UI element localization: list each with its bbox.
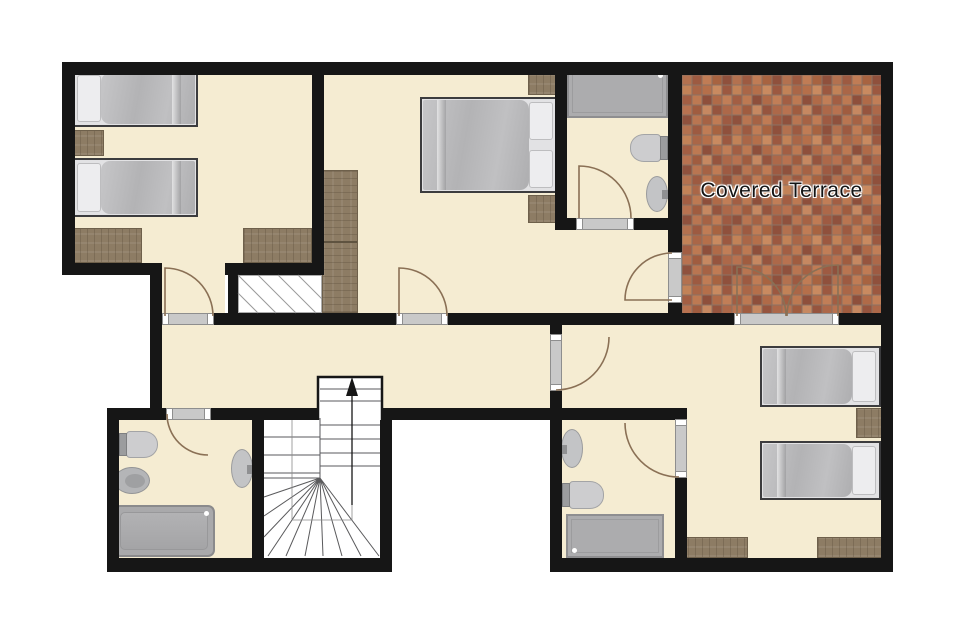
wall bbox=[213, 313, 228, 325]
stair-column-floor bbox=[319, 377, 381, 420]
wall bbox=[562, 408, 687, 420]
terrace-label: Covered Terrace bbox=[682, 75, 881, 307]
twin-bed bbox=[760, 346, 881, 407]
door-threshold-bedroom-top-left bbox=[163, 313, 213, 325]
twin-bed bbox=[72, 158, 198, 217]
shower-drain bbox=[572, 548, 577, 553]
wall bbox=[555, 62, 567, 230]
door-threshold-terrace-side bbox=[668, 253, 682, 302]
toilet bbox=[562, 481, 604, 509]
door-threshold-bathroom-left bbox=[167, 408, 210, 420]
duvet bbox=[423, 100, 529, 190]
wardrobe bbox=[72, 228, 142, 263]
door-threshold-bathroom-right bbox=[675, 420, 687, 477]
toilet bbox=[630, 134, 668, 162]
wall bbox=[252, 420, 264, 560]
duvet bbox=[101, 161, 195, 214]
pillow bbox=[77, 75, 101, 122]
wall bbox=[210, 408, 318, 420]
door-threshold-bedroom-middle bbox=[397, 313, 447, 325]
bathtub bbox=[113, 505, 215, 557]
wall bbox=[312, 62, 324, 275]
pillow bbox=[852, 446, 876, 495]
bidet-basin bbox=[125, 474, 145, 488]
bathtub-drain bbox=[204, 511, 209, 516]
wall bbox=[107, 558, 392, 572]
toilet bbox=[119, 431, 158, 458]
door-threshold-bathroom-top bbox=[577, 218, 633, 230]
wall bbox=[62, 263, 155, 275]
floor-plan: Covered Terrace bbox=[0, 0, 960, 640]
toilet-tank bbox=[660, 136, 668, 160]
wall bbox=[225, 263, 324, 275]
wall bbox=[228, 275, 238, 313]
toilet-bowl bbox=[569, 481, 604, 509]
shower-inner bbox=[571, 519, 659, 553]
middle-passage-floor bbox=[555, 230, 668, 313]
toilet-tank bbox=[562, 483, 570, 507]
wall bbox=[838, 313, 881, 325]
wall bbox=[150, 263, 162, 420]
pillow bbox=[529, 150, 553, 188]
wall bbox=[447, 313, 735, 325]
wall bbox=[62, 62, 893, 75]
pillow bbox=[852, 351, 876, 402]
pillow bbox=[77, 163, 101, 212]
wall bbox=[380, 420, 392, 572]
twin-bed bbox=[72, 70, 198, 127]
sink bbox=[646, 176, 668, 212]
door-threshold-terrace-double bbox=[735, 313, 838, 325]
wall bbox=[668, 62, 682, 253]
wall bbox=[382, 408, 562, 420]
sink bbox=[561, 429, 583, 468]
double-bed bbox=[420, 97, 558, 193]
wardrobe bbox=[680, 537, 748, 558]
twin-bed bbox=[760, 441, 881, 500]
bidet bbox=[114, 467, 150, 494]
wall bbox=[550, 558, 893, 572]
wall bbox=[555, 218, 577, 230]
toilet-bowl bbox=[126, 431, 158, 458]
duvet bbox=[763, 349, 852, 404]
duvet bbox=[101, 73, 195, 124]
wall bbox=[62, 62, 75, 275]
hatched-void-area bbox=[238, 275, 322, 313]
pillow bbox=[529, 102, 553, 140]
wardrobe bbox=[243, 228, 312, 263]
wardrobe bbox=[817, 537, 886, 558]
duvet bbox=[763, 444, 852, 497]
shower-tray bbox=[566, 514, 664, 558]
door-recess-floor bbox=[162, 263, 225, 318]
door-threshold-hallway-right bbox=[550, 335, 562, 390]
nightstand bbox=[72, 130, 104, 156]
shower-tray bbox=[567, 68, 668, 118]
tall-wardrobe bbox=[322, 170, 358, 313]
wall bbox=[881, 62, 893, 572]
wall bbox=[107, 408, 119, 570]
shower-inner bbox=[572, 73, 663, 113]
toilet-tank bbox=[119, 433, 127, 456]
nightstand bbox=[528, 195, 558, 223]
sink bbox=[231, 449, 253, 488]
wardrobe-divider bbox=[323, 241, 357, 243]
wall bbox=[550, 313, 562, 335]
wall bbox=[225, 313, 397, 325]
toilet-bowl bbox=[630, 134, 661, 162]
bathtub-inner bbox=[120, 512, 208, 550]
stairwell-floor bbox=[264, 418, 380, 558]
